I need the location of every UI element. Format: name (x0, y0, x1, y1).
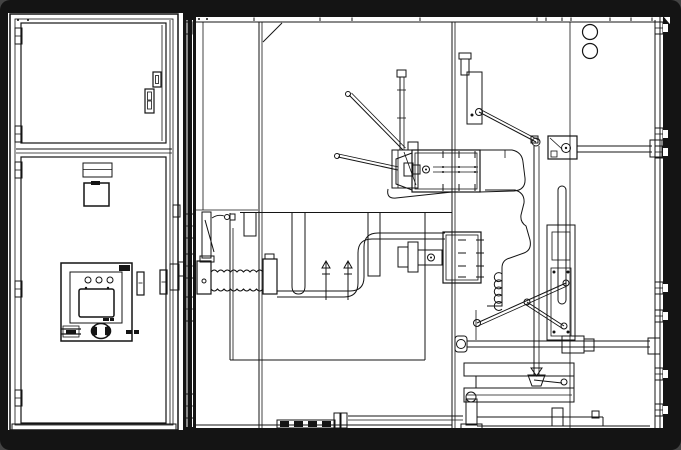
label-mark-4 (134, 330, 139, 334)
label-mark-2 (110, 318, 114, 321)
bottom-frame-bar (183, 428, 675, 444)
label-mark-1 (103, 318, 109, 321)
panel-tab (119, 265, 130, 271)
left-cabinet-face-bg (8, 13, 184, 433)
switchgear-cutaway-drawing (0, 0, 681, 450)
top-frame-bar (183, 8, 675, 17)
drawing-canvas (0, 0, 681, 450)
left-base-bar (4, 430, 185, 444)
label-mark-3 (126, 330, 132, 334)
